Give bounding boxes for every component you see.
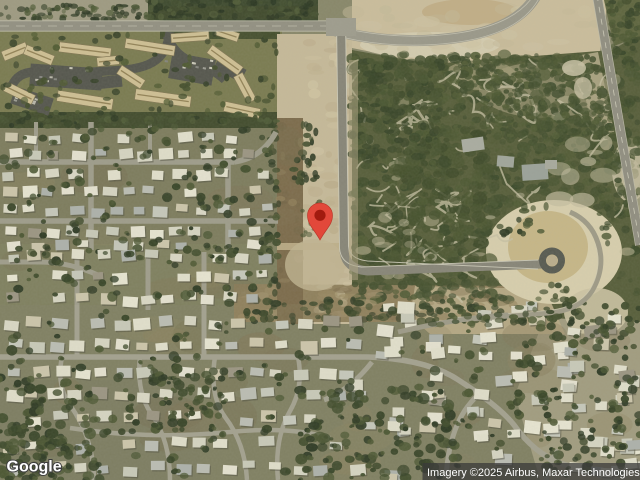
svg-text:Imagery ©2025 Airbus, Maxar Te: Imagery ©2025 Airbus, Maxar Technologies — [427, 467, 640, 479]
svg-text:Google: Google — [7, 459, 62, 476]
